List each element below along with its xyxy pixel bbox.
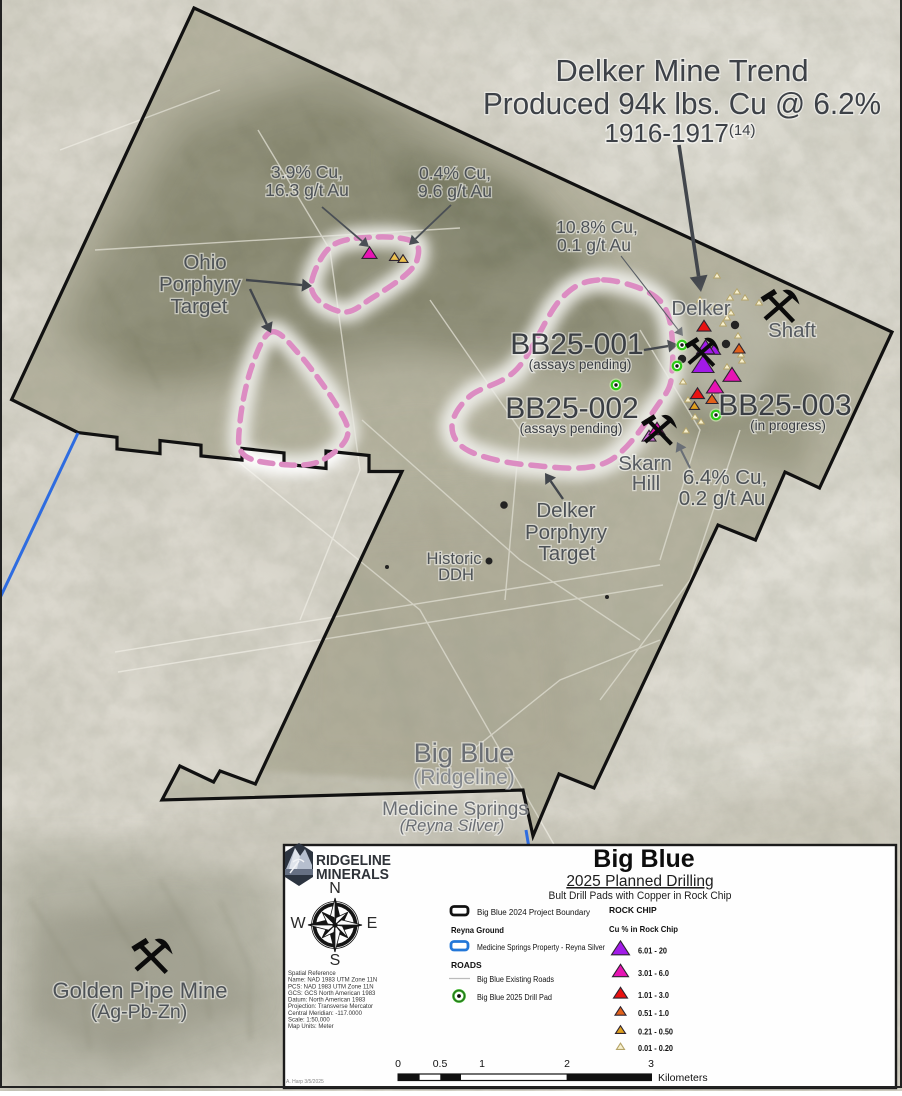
svg-text:Big Blue: Big Blue (414, 738, 515, 768)
svg-text:Porphyry: Porphyry (525, 521, 608, 544)
svg-text:2: 2 (564, 1058, 570, 1070)
svg-text:(assays pending): (assays pending) (529, 357, 632, 372)
svg-text:ROCK CHIP: ROCK CHIP (609, 905, 657, 915)
svg-text:MINERALS: MINERALS (316, 867, 389, 883)
svg-text:Big Blue Existing Roads: Big Blue Existing Roads (477, 975, 554, 984)
svg-text:2025 Planned Drilling: 2025 Planned Drilling (566, 873, 713, 890)
svg-text:Big Blue: Big Blue (593, 845, 694, 873)
svg-text:Ohio: Ohio (183, 251, 226, 274)
svg-text:(Ag-Pb-Zn): (Ag-Pb-Zn) (91, 1001, 187, 1023)
svg-text:Big Blue 2025 Drill Pad: Big Blue 2025 Drill Pad (477, 993, 552, 1002)
svg-text:Kilometers: Kilometers (658, 1072, 708, 1084)
svg-text:0: 0 (395, 1058, 401, 1070)
svg-text:Delker: Delker (536, 499, 595, 522)
svg-text:(Ridgeline): (Ridgeline) (413, 766, 515, 789)
svg-text:ROADS: ROADS (451, 960, 482, 970)
svg-text:3: 3 (648, 1058, 654, 1070)
svg-text:PCS: NAD 1983 UTM Zone 11N: PCS: NAD 1983 UTM Zone 11N (288, 984, 374, 990)
svg-text:Bult Drill Pads with Copper in: Bult Drill Pads with Copper in Rock Chip (549, 890, 732, 902)
svg-text:0.01 - 0.20: 0.01 - 0.20 (638, 1043, 673, 1053)
svg-text:6.4% Cu,: 6.4% Cu, (683, 466, 767, 489)
svg-text:DDH: DDH (438, 566, 474, 584)
svg-text:0.2 g/t Au: 0.2 g/t Au (679, 487, 766, 510)
svg-text:Medicine Springs Property - Re: Medicine Springs Property - Reyna Silver (477, 943, 605, 952)
svg-text:A. Harp 3/5/2025: A. Harp 3/5/2025 (286, 1079, 324, 1085)
svg-text:Big Blue 2024 Project Boundary: Big Blue 2024 Project Boundary (477, 908, 590, 917)
svg-text:Name: NAD 1983 UTM Zone 11N: Name: NAD 1983 UTM Zone 11N (288, 978, 377, 984)
svg-text:(in progress): (in progress) (750, 418, 826, 433)
svg-text:Scale: 1:50,000: Scale: 1:50,000 (288, 1018, 330, 1024)
svg-text:Projection: Transverse Mercato: Projection: Transverse Mercator (288, 1004, 373, 1010)
svg-text:1.01 - 3.0: 1.01 - 3.0 (638, 990, 669, 1000)
svg-text:Spatial Reference: Spatial Reference (288, 971, 336, 977)
svg-text:0.51 - 1.0: 0.51 - 1.0 (638, 1008, 669, 1018)
svg-text:3.01 - 6.0: 3.01 - 6.0 (638, 968, 669, 978)
svg-text:0.1 g/t Au: 0.1 g/t Au (557, 235, 631, 255)
svg-text:Delker: Delker (671, 297, 730, 320)
svg-text:Cu % in Rock Chip: Cu % in Rock Chip (609, 924, 678, 934)
svg-text:GCS: GCS North American 1983: GCS: GCS North American 1983 (288, 991, 376, 997)
svg-text:S: S (330, 952, 341, 969)
svg-text:Reyna Ground: Reyna Ground (451, 925, 504, 935)
svg-text:Target: Target (539, 542, 596, 565)
svg-text:Produced 94k lbs. Cu @ 6.2%: Produced 94k lbs. Cu @ 6.2% (483, 86, 881, 121)
svg-text:Shaft: Shaft (768, 319, 816, 342)
svg-text:0.5: 0.5 (433, 1058, 448, 1070)
svg-text:Delker Mine Trend: Delker Mine Trend (555, 53, 808, 88)
svg-text:Central Meridian: -117.0000: Central Meridian: -117.0000 (288, 1011, 363, 1017)
svg-text:Map Units: Meter: Map Units: Meter (288, 1024, 334, 1030)
svg-text:W: W (290, 915, 306, 932)
svg-text:9.6 g/t Au: 9.6 g/t Au (418, 181, 492, 201)
svg-text:10.8% Cu,: 10.8% Cu, (556, 217, 638, 237)
svg-text:16.3 g/t Au: 16.3 g/t Au (265, 180, 349, 200)
svg-text:3.9% Cu,: 3.9% Cu, (271, 162, 343, 182)
svg-text:6.01 - 20: 6.01 - 20 (638, 946, 667, 956)
svg-text:Hill: Hill (632, 472, 660, 495)
svg-text:1: 1 (479, 1058, 485, 1070)
svg-text:0.4% Cu,: 0.4% Cu, (419, 163, 491, 183)
svg-text:N: N (329, 880, 341, 897)
svg-text:(Reyna Silver): (Reyna Silver) (400, 817, 505, 835)
svg-text:Porphyry: Porphyry (159, 273, 242, 296)
svg-text:Datum: North American 1983: Datum: North American 1983 (288, 998, 366, 1004)
svg-text:Golden Pipe Mine: Golden Pipe Mine (53, 978, 228, 1003)
svg-text:(assays pending): (assays pending) (520, 421, 623, 436)
svg-text:E: E (367, 915, 378, 932)
svg-text:Target: Target (171, 295, 228, 318)
svg-text:0.21 - 0.50: 0.21 - 0.50 (638, 1027, 673, 1037)
